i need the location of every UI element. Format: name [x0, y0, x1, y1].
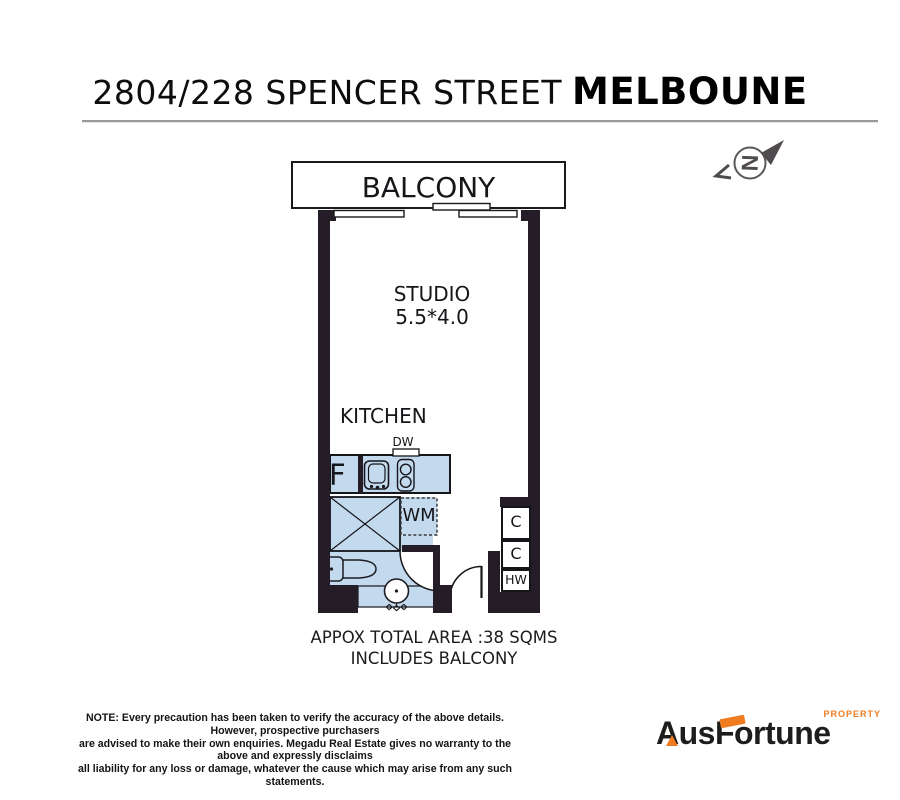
- washing-machine-label: WM: [401, 505, 437, 526]
- wall-bottom-left: [318, 585, 358, 613]
- studio-label: STUDIO 5.5*4.0: [361, 283, 503, 329]
- disclaimer-line1: NOTE: Every precaution has been taken to…: [70, 712, 520, 738]
- disclaimer-line2: are advised to make their own enquiries.…: [70, 738, 520, 764]
- entry-door: [450, 566, 482, 598]
- disclaimer-line3: all liability for any loss or damage, wh…: [70, 763, 520, 789]
- compass-small-arrow: [716, 165, 731, 178]
- disclaimer-note: NOTE: Every precaution has been taken to…: [70, 712, 520, 789]
- kitchen-counter: [330, 455, 450, 493]
- wall-bottom-right: [488, 592, 540, 613]
- wall-closet-top: [500, 497, 540, 507]
- wall-entry-right-stub: [488, 551, 500, 593]
- basin: [385, 579, 409, 611]
- compass-north-letter: N: [737, 154, 764, 172]
- compass-icon: N: [716, 140, 784, 179]
- logo-name-suffix: ortune: [734, 715, 831, 751]
- counter-divider: [358, 456, 363, 493]
- kitchen-label: KITCHEN: [340, 404, 427, 428]
- area-summary: APPOX TOTAL AREA :38 SQMS INCLUDES BALCO…: [284, 628, 584, 669]
- hot-water-label: HW: [502, 572, 530, 587]
- area-line1: APPOX TOTAL AREA :38 SQMS: [284, 628, 584, 649]
- logo-a-accent-triangle: [666, 735, 678, 746]
- logo-tagline: PROPERTY: [823, 709, 881, 719]
- wall-entry-left-stub: [433, 585, 452, 613]
- dishwasher-marker: [393, 449, 419, 456]
- floorplan-page: 2804/228 SPENCER STREETMELBOUNE: [0, 0, 900, 800]
- agency-logo: PROPERTY AusFortune: [650, 706, 885, 766]
- area-line2: INCLUDES BALCONY: [284, 649, 584, 670]
- fridge-label: F: [329, 458, 346, 492]
- dishwasher-label: DW: [383, 435, 423, 449]
- cupboard-bottom-label: C: [502, 544, 530, 563]
- cupboard-top-label: C: [502, 512, 530, 531]
- studio-dimensions: 5.5*4.0: [361, 306, 503, 329]
- logo-name-prefix: Aus: [656, 715, 715, 751]
- floorplan-drawing: N: [0, 0, 900, 680]
- balcony-label: BALCONY: [292, 171, 565, 204]
- studio-name: STUDIO: [361, 283, 503, 306]
- shower: [330, 497, 400, 551]
